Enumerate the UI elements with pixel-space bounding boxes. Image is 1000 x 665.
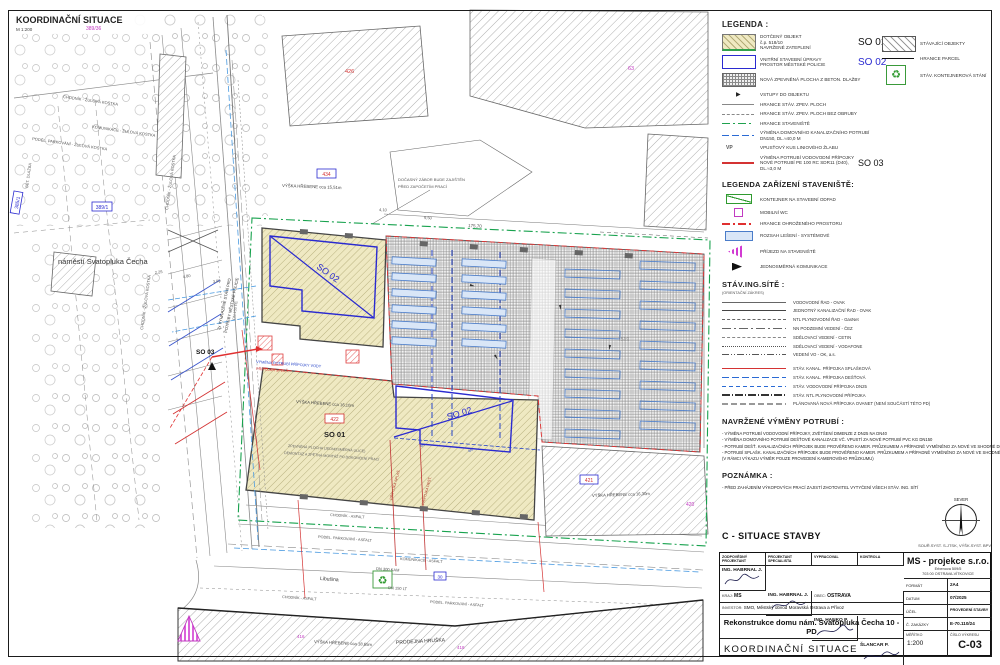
parcel-389-1: 389/1 [96, 205, 109, 211]
site-item-scaffold: ROZSAH LEŠENÍ - SYSTÉMOVÉ [722, 231, 990, 241]
network-row: NN PODZEMNÍ VEDENÍ - ČEZ [722, 324, 990, 333]
red-dashdot-swatch [722, 223, 754, 225]
legend-item-parcel-boundary: HRANICE PARCEL [882, 56, 990, 61]
svg-text:426: 426 [345, 69, 354, 75]
svg-text:PŘED ZAPOČETÍM PRACÍ: PŘED ZAPOČETÍM PRACÍ [398, 184, 448, 189]
legend-item-site-boundary: HRANICE STAVENIŠTĚ [722, 121, 894, 126]
role-cell: ZODPOVĚDNÝPROJEKTANT [720, 553, 766, 566]
order-value-cell: E-70.110/24 [948, 618, 992, 631]
svg-text:4,10: 4,10 [379, 207, 388, 212]
scaffold-swatch [725, 231, 753, 241]
legend-title: LEGENDA : [722, 20, 990, 29]
svg-text:PODÉL. PARKOVÁNÍ - ASFALT: PODÉL. PARKOVÁNÍ - ASFALT [318, 534, 373, 543]
svg-text:420: 420 [686, 502, 695, 508]
svg-text:DN 150 LT: DN 150 LT [388, 585, 408, 591]
legend-item-paved-boundary-nocurb: HRANICE STÁV. ZPEV. PLOCH BEZ OBRUBY [722, 111, 894, 116]
format-label-cell: FORMÁT [904, 579, 948, 592]
name-cell: ING. HABRNAL J. [720, 566, 766, 591]
svg-text:VP: VP [468, 449, 473, 453]
green-dashdot-swatch [722, 123, 754, 125]
project-cell: Rekonstrukce domu nám. Svatopluka Čecha … [720, 615, 904, 639]
site-item-entrance: PŘÍJEZD NA STAVENIŠTĚ [722, 245, 990, 259]
svg-text:VÝŠKA HŘEBENE cca 15,51m: VÝŠKA HŘEBENE cca 15,51m [282, 183, 342, 190]
black-line-swatch [882, 58, 914, 59]
network-row: NTL PLYNOVODNÍ ŘAD - GasNet [722, 315, 990, 324]
legend-item-paved-boundary: HRANICE STÁV. ZPEV. PLOCH [722, 102, 894, 107]
blue-dash-swatch [722, 135, 754, 137]
plan-title: KOORDINAČNÍ SITUACE [16, 14, 123, 25]
coordinate-systems: SOUŘ.SYST. S-JTSK, VÝŠK.SYST. BPV [845, 543, 991, 548]
svg-text:SO 01: SO 01 [324, 430, 345, 439]
note-item: - PŘED ZAHÁJENÍM VÝKOPOVÝCH PRACÍ ZAJIST… [722, 485, 990, 491]
svg-text:416: 416 [297, 634, 305, 639]
svg-text:SO 03: SO 03 [196, 349, 215, 356]
networks-title: STÁV.ING.SÍTĚ : [722, 280, 990, 289]
svg-text:389/36: 389/36 [86, 26, 102, 32]
role-cell: VYPRACOVAL [812, 553, 858, 566]
water-connection-line [722, 386, 786, 387]
recycle-icon: ♻ [886, 65, 906, 85]
north-label: SEVER [941, 497, 981, 502]
network-row: STÁV. VODOVODNÍ PŘÍPOJKA DN25 [722, 382, 990, 391]
section-header: C - SITUACE STAVBY [722, 531, 821, 541]
streetlight-line [722, 354, 786, 355]
telecom-cetin-line [722, 337, 786, 338]
waste-container-swatch [726, 194, 752, 204]
network-row: JEDNOTNÝ KANALIZAČNÍ ŘAD - OVAK [722, 306, 990, 315]
mobile-wc-swatch [734, 208, 743, 217]
project-title: Rekonstrukce domu nám. Svatopluka Čecha … [720, 618, 903, 636]
drawing-sheet: ♻ 385/1 389/1 434 422 421 30 KOORDINAČNÍ… [0, 0, 1000, 665]
svg-text:9,50: 9,50 [424, 215, 433, 220]
svg-text:Libušina: Libušina [320, 576, 339, 583]
site-legend-title: LEGENDA ZAŘÍZENÍ STAVENIŠTĚ: [722, 180, 990, 189]
legend-item-affected-building: DOTČENÝ OBJEKTč.p. 518/10NAVRŽENÉ ZATEPL… [722, 34, 894, 51]
legend-item-new-paving: NOVÁ ZPEVNĚNÁ PLOCHA Z BETON. DLAŽBY [722, 73, 894, 87]
proposed-item: (V RÁMCI VÝKAZU VÝMĚR POUZE PROVEDENÍ KA… [722, 456, 990, 462]
parcel-434: 434 [322, 172, 331, 178]
svg-text:418: 418 [457, 645, 465, 650]
svg-text:náměstí Svatopluka Čecha: náměstí Svatopluka Čecha [58, 257, 148, 266]
company-address2: 703 00 OSTRAVA-VÍTKOVICE [904, 572, 992, 576]
svg-text:DOČASNÝ ZÁBOR BUDE ZAJIŠTĚN: DOČASNÝ ZÁBOR BUDE ZAJIŠTĚN [398, 177, 465, 182]
proposed-item: - POTRUBÍ DEŠŤ. KANALIZAČNÍCH PŘÍPOJEK B… [722, 444, 990, 450]
drawing-number: C-03 [948, 639, 992, 651]
format-value-cell: 2A4 [948, 579, 992, 592]
company-name: MS - projekce s.r.o. [904, 556, 992, 566]
legend-item-water-replacement: VÝMĚNA POTRUBÍ VODOVODNÍ PŘÍPOJKYNOVÉ PO… [722, 155, 894, 171]
sewer-main-line [722, 310, 786, 311]
site-item-danger: HRANICE OHROŽENÉHO PROSTORU [722, 221, 990, 226]
investor-cell: INVESTOR: SMO, Městský obvod Moravská Os… [720, 603, 904, 615]
site-item-container: KONTEJNER NA STAVEBNÍ ODPAD [722, 194, 990, 204]
order-label-cell: Č. ZAKÁZKY [904, 618, 948, 631]
title-block: ZODPOVĚDNÝPROJEKTANT PROJEKTANTSPECIALIS… [719, 552, 991, 656]
drawing-title-cell: KOORDINAČNÍ SITUACE [720, 639, 904, 657]
svg-text:CHODNÍK - ASFALT: CHODNÍK - ASFALT [330, 513, 365, 519]
north-compass: SEVER [941, 497, 981, 545]
proposed-title: NAVRŽENÉ VÝMĚNY POTRUBÍ : [722, 417, 990, 426]
svg-text:3,00: 3,00 [212, 278, 221, 284]
purpose-label-cell: ÚČEL [904, 605, 948, 618]
site-entrance-icon [728, 245, 744, 259]
svg-text:1519: 1519 [618, 337, 629, 343]
legend-item-sewer-replacement: VÝMĚNA DOMOVNÍHO KANALIZAČNÍHO POTRUBÍDN… [722, 130, 894, 141]
telecom-vodafone-line [722, 346, 786, 347]
blue-rect-swatch [722, 55, 756, 69]
water-main-line [722, 302, 786, 303]
date-label-cell: DATUM [904, 592, 948, 605]
ovanet-connection-line [722, 403, 786, 405]
solid-line-swatch [722, 104, 754, 105]
svg-text:PODÉL. PARKOVÁNÍ - ASFALT: PODÉL. PARKOVÁNÍ - ASFALT [430, 599, 485, 608]
site-item-wc: MOBILNÍ WC [722, 208, 990, 217]
purpose-value-cell: PROVEDENÍ STAVBY [948, 605, 992, 618]
svg-text:4,80: 4,80 [182, 273, 191, 279]
network-row: VEDENÍ VO - OK, a.s. [722, 350, 990, 359]
vegetation-texture [10, 14, 270, 528]
role-cell: PROJEKTANTSPECIALISTA [766, 553, 812, 566]
network-row: PLÁNOVANÁ NOVÁ PŘÍPOJKA OVANET (NENÍ SOU… [722, 399, 990, 408]
site-plan: ♻ 385/1 389/1 434 422 421 30 KOORDINAČNÍ… [0, 0, 720, 665]
network-row: SDĚLOVACÍ VEDENÍ - CETIN [722, 333, 990, 342]
svg-text:63: 63 [628, 66, 634, 72]
dashed-line-swatch [722, 114, 754, 115]
company-cell: MS - projekce s.r.o. Erbenova 509/5 703 … [904, 553, 992, 579]
network-row: STÁV. NTL PLYNOVODNÍ PŘÍPOJKA [722, 391, 990, 400]
kraj-cell: KRAJ: MS [720, 591, 812, 603]
network-row: SDĚLOVACÍ VEDENÍ - VODAFONE [722, 342, 990, 351]
recycle-icon: ♻ [378, 575, 388, 587]
legend-item-existing-buildings: STÁVAJÍCÍ OBJEKTY [882, 36, 990, 52]
svg-text:CHODNÍK - ASFALT: CHODNÍK - ASFALT [282, 595, 317, 601]
plan-scale: M 1:200 [16, 27, 33, 32]
svg-text:VP: VP [420, 444, 425, 448]
role-cell: KONTROLA [858, 553, 904, 566]
vp-symbol: VP [726, 145, 733, 151]
obec-cell: OBEC: OSTRAVA [812, 591, 904, 603]
so03-tag: SO 03 [858, 158, 894, 168]
parcel-422: 422 [330, 417, 339, 423]
legend-panel: LEGENDA : DOTČENÝ OBJEKTč.p. 518/10NAVRŽ… [722, 16, 990, 491]
gas-connection-line [722, 394, 786, 395]
gray-hatch-swatch [882, 36, 916, 52]
legend-item-container-stand: ♻ STÁV. KONTEJNEROVÁ STÁNÍ [882, 65, 990, 85]
power-line [722, 328, 786, 329]
one-way-triangle [208, 362, 216, 370]
gas-main-line [722, 319, 786, 320]
date-value-cell: 07/2025 [948, 592, 992, 605]
scale-cell: MĚŘÍTKO 1:200 [904, 631, 948, 657]
network-row: STÁV. KANAL. PŘÍPOJKA SPLAŠKOVÁ [722, 364, 990, 373]
entrance-arrow-icon: ▶ [736, 91, 741, 98]
note-title: POZNÁMKA : [722, 471, 990, 480]
scale-value: 1:200 [904, 637, 947, 647]
compass-circle [945, 504, 977, 536]
sewage-connection-line [722, 368, 786, 369]
company-address1: Erbenova 509/5 [904, 567, 992, 571]
signature [723, 572, 763, 588]
parcel-30: 30 [437, 575, 443, 580]
yellow-hatch-swatch [722, 34, 756, 51]
legend-item-interior-works: VNITŘNÍ STAVEBNÍ ÚPRAVYPROSTOR MĚSTSKÉ P… [722, 55, 894, 69]
svg-text:175,70: 175,70 [468, 223, 483, 229]
networks-subtitle: (ORIENTAČNÍ ZÁKRES) [722, 291, 990, 295]
cancelled-stalls-red [173, 382, 227, 444]
network-row: STÁV. KANAL. PŘÍPOJKA DEŠŤOVÁ [722, 373, 990, 382]
legend-item-entrances: ▶ VSTUPY DO OBJEKTU [722, 91, 894, 98]
parcel-421: 421 [585, 478, 594, 484]
site-item-oneway: JEDNOSMĚRNÁ KOMUNIKACE [722, 263, 990, 271]
one-way-arrow-icon [732, 263, 742, 271]
drawing-number-cell: ČÍSLO VÝKRESU C-03 [948, 631, 992, 657]
storm-connection-line [722, 377, 786, 378]
red-line-swatch [722, 162, 754, 164]
legend-item-gully: VP VPUSŤOVÝ KUS LINIOVÉHO ŽLABU [722, 145, 894, 151]
dense-hatch-swatch [722, 73, 756, 87]
network-row: VODOVODNÍ ŘAD - OVAK [722, 298, 990, 307]
